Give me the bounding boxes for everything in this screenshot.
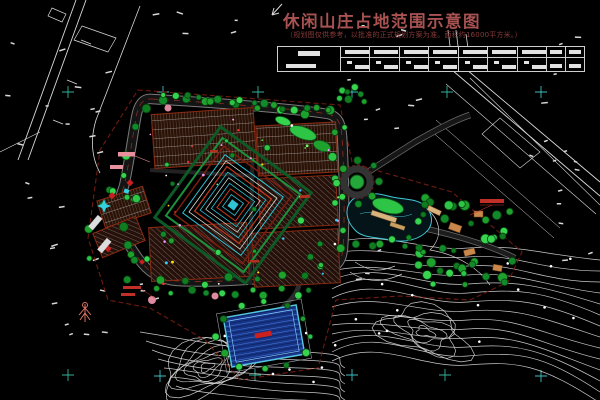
legend-text-block [355, 65, 369, 69]
swimming-pool [216, 299, 311, 373]
legend-text-block [414, 65, 428, 69]
legend-text-block [569, 50, 581, 54]
legend-text-block [406, 61, 411, 64]
legend-text-block [433, 50, 457, 55]
legend-text-block [374, 50, 398, 55]
drawing-title: 休闲山庄占地范围示意图 [283, 8, 513, 32]
legend-text-block [532, 65, 546, 69]
legend-cell [278, 47, 340, 71]
legend-text-block [443, 65, 457, 69]
legend-text-block [569, 64, 581, 68]
legend-text-block [502, 65, 516, 69]
legend-text-block [347, 61, 352, 64]
legend-table [277, 46, 585, 72]
legend-cell [565, 47, 584, 71]
cad-site-plan-canvas: 休闲山庄占地范围示意图 （规划图仅供参考，以批准的正式规划方案为准。面积约160… [0, 0, 600, 400]
legend-text-block [298, 51, 320, 56]
legend-text-block [376, 61, 381, 64]
legend-text-block [345, 50, 369, 55]
legend-text-block [404, 50, 428, 55]
existing-roads-northwest [0, 0, 140, 173]
legend-text-block [473, 65, 487, 69]
legend-cell [340, 47, 369, 71]
legend-cell [517, 47, 546, 71]
legend-cell [369, 47, 398, 71]
legend-text-block [286, 64, 316, 68]
legend-text-block [524, 61, 529, 64]
legend-text-block [550, 50, 562, 54]
pink-tree-symbol [79, 303, 91, 323]
legend-cell [546, 47, 565, 71]
legend-cell [487, 47, 516, 71]
legend-text-block [550, 64, 562, 68]
legend-cell [399, 47, 428, 71]
drawing-subtitle: （规划图仅供参考，以批准的正式规划方案为准。面积约16000平方米。） [286, 30, 586, 40]
legend-text-block [522, 50, 546, 55]
legend-cell [458, 47, 487, 71]
legend-text-block [492, 50, 516, 55]
legend-text-block [435, 61, 440, 64]
legend-text-block [465, 61, 470, 64]
legend-text-block [463, 50, 487, 55]
legend-text-block [384, 65, 398, 69]
legend-text-block [494, 61, 499, 64]
legend-cell [428, 47, 457, 71]
